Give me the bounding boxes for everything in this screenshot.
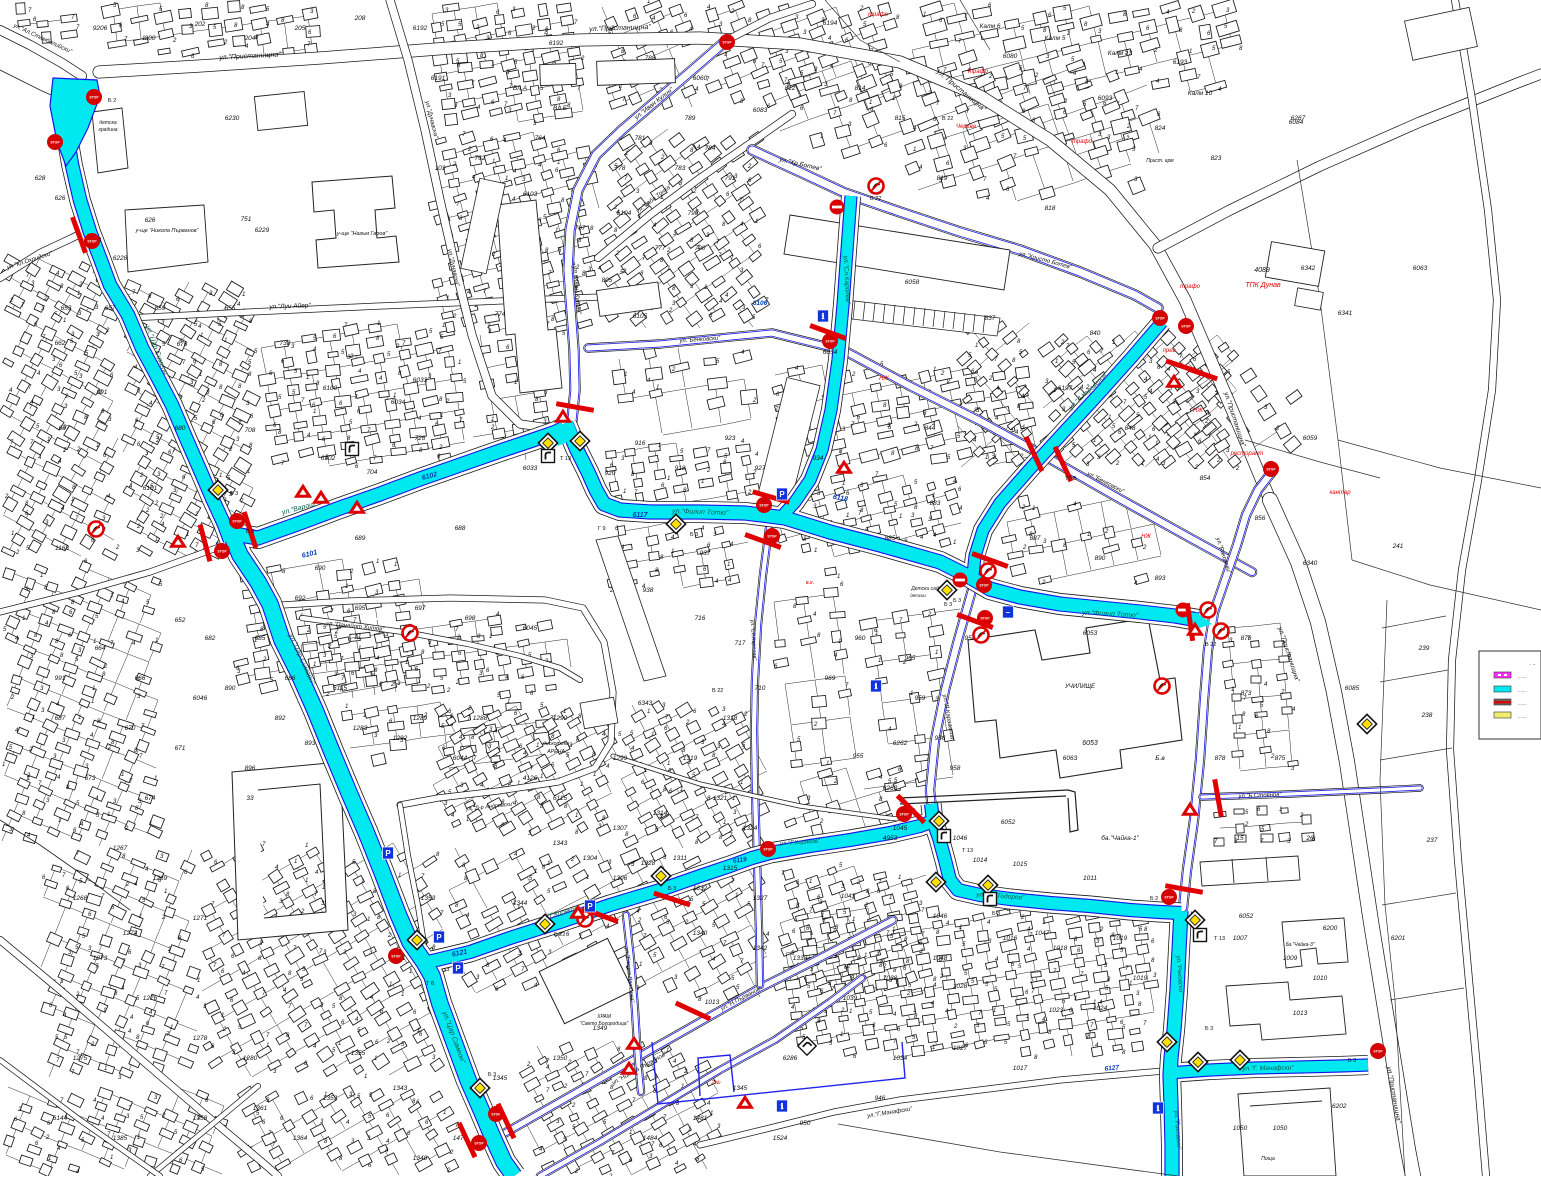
svg-text:2: 2 xyxy=(1142,545,1147,551)
svg-text:1: 1 xyxy=(107,812,110,818)
svg-text:883: 883 xyxy=(930,500,941,507)
svg-text:1: 1 xyxy=(740,780,743,786)
svg-text:2: 2 xyxy=(752,398,757,404)
svg-text:STOP: STOP xyxy=(763,847,773,851)
svg-text:1: 1 xyxy=(875,631,878,637)
svg-text:2: 2 xyxy=(262,657,267,663)
svg-text:1: 1 xyxy=(389,982,392,988)
svg-text:1319: 1319 xyxy=(683,755,698,762)
svg-text:Черква: Черква xyxy=(956,124,977,130)
svg-text:1: 1 xyxy=(688,1127,691,1133)
svg-text:2: 2 xyxy=(706,468,711,474)
svg-text:1: 1 xyxy=(199,372,202,378)
svg-text:Вл.А: Вл.А xyxy=(513,85,527,92)
svg-text:1: 1 xyxy=(869,100,872,106)
svg-text:1: 1 xyxy=(394,562,397,568)
svg-text:6197: 6197 xyxy=(1058,385,1073,392)
svg-text:1: 1 xyxy=(58,818,61,824)
svg-text:2: 2 xyxy=(327,644,332,650)
svg-text:Калм 6: Калм 6 xyxy=(980,23,1001,30)
svg-text:детски: детски xyxy=(910,593,926,598)
svg-text:1: 1 xyxy=(2,762,5,768)
svg-text:STOP: STOP xyxy=(50,140,60,144)
svg-text:687: 687 xyxy=(55,715,66,722)
svg-text:6034: 6034 xyxy=(391,399,406,406)
svg-text:трафо: трафо xyxy=(868,12,889,18)
svg-text:1: 1 xyxy=(647,709,650,715)
svg-text:2: 2 xyxy=(78,282,83,288)
svg-text:673: 673 xyxy=(85,775,96,782)
svg-text:STOP: STOP xyxy=(979,583,989,587)
svg-text:2: 2 xyxy=(840,1008,845,1014)
svg-text:6052: 6052 xyxy=(1239,913,1254,920)
svg-text:937: 937 xyxy=(700,550,711,557)
svg-text:1: 1 xyxy=(892,927,895,933)
svg-text:1: 1 xyxy=(363,713,366,719)
svg-text:680: 680 xyxy=(175,425,186,432)
svg-text:1: 1 xyxy=(1189,49,1192,55)
svg-text:1288: 1288 xyxy=(473,715,488,722)
svg-text:1028: 1028 xyxy=(953,983,968,990)
svg-text:1018: 1018 xyxy=(1053,945,1068,952)
svg-text:6101: 6101 xyxy=(143,485,158,492)
svg-text:2: 2 xyxy=(1126,124,1131,130)
svg-text:1: 1 xyxy=(732,796,735,802)
svg-text:1328: 1328 xyxy=(641,860,656,867)
svg-text:–: – xyxy=(1006,608,1011,617)
svg-text:927: 927 xyxy=(755,465,766,472)
svg-text:2: 2 xyxy=(390,682,395,688)
svg-text:1338: 1338 xyxy=(793,955,808,962)
svg-text:1: 1 xyxy=(78,715,81,721)
svg-text:2: 2 xyxy=(139,473,144,479)
svg-text:1: 1 xyxy=(1087,532,1090,538)
svg-text:1: 1 xyxy=(489,634,492,640)
svg-text:трафо: трафо xyxy=(968,69,989,75)
svg-text:1: 1 xyxy=(1053,388,1056,394)
svg-text:1: 1 xyxy=(104,1066,107,1072)
svg-text:2: 2 xyxy=(913,422,918,428)
svg-text:2: 2 xyxy=(107,745,112,751)
svg-text:1: 1 xyxy=(358,634,361,640)
svg-text:2: 2 xyxy=(747,164,752,170)
svg-text:6230: 6230 xyxy=(225,115,240,122)
svg-text:6105: 6105 xyxy=(633,313,648,320)
svg-text:1: 1 xyxy=(1055,359,1058,365)
svg-text:205: 205 xyxy=(294,25,306,32)
svg-text:Калм 10: Калм 10 xyxy=(1188,90,1213,97)
svg-text:STOP: STOP xyxy=(232,519,242,523)
svg-text:238: 238 xyxy=(1421,712,1433,719)
svg-text:1: 1 xyxy=(40,573,43,579)
svg-text:1016: 1016 xyxy=(1003,935,1018,942)
svg-text:1: 1 xyxy=(557,160,560,166)
svg-text:2: 2 xyxy=(446,688,451,694)
svg-text:6080: 6080 xyxy=(1003,53,1018,60)
svg-text:STOP: STOP xyxy=(1373,1049,1383,1053)
svg-text:STOP: STOP xyxy=(722,40,732,44)
svg-text:2: 2 xyxy=(395,344,400,350)
svg-text:1: 1 xyxy=(629,1130,632,1136)
svg-text:1007: 1007 xyxy=(1233,935,1248,942)
svg-text:1: 1 xyxy=(401,992,404,998)
svg-text:824: 824 xyxy=(1155,125,1166,132)
svg-text:1: 1 xyxy=(155,638,158,644)
svg-text:1: 1 xyxy=(892,96,895,102)
svg-text:2: 2 xyxy=(445,399,450,405)
svg-text:204: 204 xyxy=(244,35,256,42)
svg-text:823: 823 xyxy=(1211,155,1222,162)
svg-text:2№: 2№ xyxy=(710,1080,720,1086)
svg-text:2: 2 xyxy=(747,490,752,496)
svg-text:626: 626 xyxy=(55,195,66,202)
svg-text:1: 1 xyxy=(586,875,589,881)
svg-text:2: 2 xyxy=(43,296,48,302)
svg-text:1: 1 xyxy=(923,12,926,18)
svg-text:6059: 6059 xyxy=(1303,435,1318,442)
svg-text:6060: 6060 xyxy=(693,75,708,82)
svg-text:1273: 1273 xyxy=(93,955,108,962)
svg-text:1043: 1043 xyxy=(841,893,856,900)
svg-text:920: 920 xyxy=(605,470,616,477)
svg-text:1: 1 xyxy=(826,761,829,767)
svg-text:1: 1 xyxy=(491,417,494,423)
svg-text:1524: 1524 xyxy=(773,1135,788,1142)
svg-text:726: 726 xyxy=(415,435,426,442)
svg-text:2: 2 xyxy=(387,933,392,939)
svg-text:1290: 1290 xyxy=(553,715,568,722)
svg-text:2: 2 xyxy=(567,1060,572,1066)
svg-text:1271: 1271 xyxy=(193,915,208,922)
svg-text:1: 1 xyxy=(651,732,654,738)
svg-text:1350: 1350 xyxy=(553,1055,568,1062)
svg-text:STOP: STOP xyxy=(1266,467,1276,471)
svg-text:1272: 1272 xyxy=(123,930,138,937)
svg-text:991: 991 xyxy=(97,389,108,396)
svg-text:2: 2 xyxy=(692,189,697,195)
svg-text:1: 1 xyxy=(197,978,200,984)
svg-text:1: 1 xyxy=(671,549,674,555)
svg-text:1: 1 xyxy=(809,879,812,885)
svg-text:2: 2 xyxy=(1020,915,1025,921)
svg-text:1050: 1050 xyxy=(1273,1125,1288,1132)
svg-text:Б 2: Б 2 xyxy=(108,98,116,104)
svg-text:1: 1 xyxy=(374,1056,377,1062)
svg-text:1276: 1276 xyxy=(143,995,158,1002)
svg-text:1: 1 xyxy=(639,962,642,968)
svg-text:6106: 6106 xyxy=(753,300,768,307)
svg-text:у-ще ”Назъм Гаров”: у-ще ”Назъм Гаров” xyxy=(336,231,389,237)
svg-text:НЖ: НЖ xyxy=(1193,408,1203,414)
svg-text:2: 2 xyxy=(438,445,443,451)
svg-text:1361: 1361 xyxy=(253,1105,268,1112)
svg-text:STOP: STOP xyxy=(1181,324,1191,328)
svg-text:659: 659 xyxy=(155,305,166,312)
svg-text:1307: 1307 xyxy=(613,825,628,832)
svg-text:876: 876 xyxy=(1241,635,1252,642)
svg-text:STOP: STOP xyxy=(899,812,909,816)
svg-text:ТПК Дунав: ТПК Дунав xyxy=(1245,282,1281,289)
svg-text:1: 1 xyxy=(242,292,245,298)
svg-text:1024: 1024 xyxy=(1093,1005,1108,1012)
svg-text:1: 1 xyxy=(658,443,661,449)
svg-text:1046: 1046 xyxy=(953,835,968,842)
svg-text:716: 716 xyxy=(695,615,706,622)
svg-text:6263: 6263 xyxy=(883,785,898,792)
svg-text:1348: 1348 xyxy=(413,1155,428,1162)
svg-text:1: 1 xyxy=(313,662,316,668)
svg-text:6117: 6117 xyxy=(632,512,648,519)
svg-text:Вл.Б: Вл.Б xyxy=(553,105,567,112)
svg-text:697: 697 xyxy=(415,605,426,612)
svg-text:1: 1 xyxy=(440,413,443,419)
svg-text:103: 103 xyxy=(435,165,446,172)
svg-text:2: 2 xyxy=(154,501,159,507)
svg-text:ба.”Чайка-3”: ба.”Чайка-3” xyxy=(1286,941,1315,948)
svg-text:2: 2 xyxy=(172,38,177,44)
svg-text:2: 2 xyxy=(475,25,480,31)
svg-text:2: 2 xyxy=(167,947,172,953)
svg-text:1: 1 xyxy=(1042,920,1045,926)
svg-text:1: 1 xyxy=(814,548,817,554)
svg-text:1355: 1355 xyxy=(351,1050,366,1057)
svg-text:815: 815 xyxy=(895,115,906,122)
svg-text:2: 2 xyxy=(1275,426,1280,432)
svg-text:2: 2 xyxy=(671,367,676,373)
svg-text:P: P xyxy=(455,964,461,973)
svg-text:2: 2 xyxy=(452,314,457,320)
svg-text:791: 791 xyxy=(725,175,736,182)
svg-text:1: 1 xyxy=(593,772,596,778)
svg-text:2: 2 xyxy=(161,1113,166,1119)
svg-text:2: 2 xyxy=(201,398,206,404)
svg-text:6053: 6053 xyxy=(1083,630,1098,637)
svg-text:875: 875 xyxy=(1275,755,1286,762)
svg-text:2: 2 xyxy=(859,6,864,12)
svg-text:1: 1 xyxy=(306,375,309,381)
svg-text:1050: 1050 xyxy=(1233,1125,1248,1132)
svg-text:2: 2 xyxy=(1066,31,1071,37)
svg-text:1: 1 xyxy=(864,953,867,959)
svg-text:1: 1 xyxy=(959,925,962,931)
svg-text:1: 1 xyxy=(376,559,379,565)
svg-text:2: 2 xyxy=(1115,461,1120,467)
svg-text:2: 2 xyxy=(953,1024,958,1030)
svg-text:1: 1 xyxy=(1112,340,1115,346)
svg-text:1: 1 xyxy=(110,593,113,599)
svg-text:2: 2 xyxy=(426,684,431,690)
svg-text:657: 657 xyxy=(105,305,116,312)
svg-text:1: 1 xyxy=(505,176,508,182)
svg-text:Б 3: Б 3 xyxy=(246,529,254,535)
svg-text:УЧИЛИЩЕ: УЧИЛИЩЕ xyxy=(1064,684,1096,690)
svg-text:1: 1 xyxy=(154,776,157,782)
svg-text:4089: 4089 xyxy=(1254,267,1270,274)
svg-text:1484: 1484 xyxy=(643,1135,658,1142)
svg-text:1: 1 xyxy=(656,385,659,391)
svg-text:1010: 1010 xyxy=(1313,975,1328,982)
svg-text:в.к.: в.к. xyxy=(806,580,815,586)
svg-text:2: 2 xyxy=(615,251,620,257)
svg-text:2: 2 xyxy=(76,447,81,453)
svg-text:1344: 1344 xyxy=(513,900,528,907)
svg-text:208: 208 xyxy=(354,15,366,22)
svg-text:ресторант: ресторант xyxy=(1230,451,1264,457)
svg-text:991: 991 xyxy=(55,675,66,682)
svg-text:1324: 1324 xyxy=(743,825,758,832)
svg-text:1: 1 xyxy=(1231,687,1234,693)
svg-text:STOP: STOP xyxy=(87,239,97,243)
svg-text:1023: 1023 xyxy=(1049,1007,1064,1014)
svg-text:1014: 1014 xyxy=(973,857,988,864)
svg-text:1: 1 xyxy=(48,1156,51,1162)
svg-text:878: 878 xyxy=(1215,755,1226,762)
svg-text:670: 670 xyxy=(125,725,136,732)
svg-text:956: 956 xyxy=(935,735,946,742)
svg-text:667: 667 xyxy=(59,425,70,432)
svg-text:1: 1 xyxy=(103,1008,106,1014)
svg-text:1353: 1353 xyxy=(421,895,436,902)
svg-text:1343: 1343 xyxy=(553,840,568,847)
svg-text:934: 934 xyxy=(813,455,824,462)
svg-text:6342: 6342 xyxy=(1301,265,1316,272)
svg-text:674: 674 xyxy=(145,795,156,802)
svg-text:1: 1 xyxy=(458,360,461,366)
svg-text:1: 1 xyxy=(704,285,707,291)
svg-text:2: 2 xyxy=(1204,419,1209,425)
svg-text:6341: 6341 xyxy=(1338,310,1353,317)
svg-text:950: 950 xyxy=(800,1120,811,1127)
svg-text:890: 890 xyxy=(225,685,236,692)
svg-text:ул.”Г. Манафски”: ул.”Г. Манафски” xyxy=(1241,1065,1294,1073)
svg-text:STOP: STOP xyxy=(767,534,777,538)
svg-text:дискотека: дискотека xyxy=(543,741,569,747)
svg-text:6340: 6340 xyxy=(1303,560,1318,567)
svg-text:1: 1 xyxy=(842,481,845,487)
svg-text:2: 2 xyxy=(1244,822,1249,828)
svg-text:762: 762 xyxy=(475,155,486,162)
svg-text:2: 2 xyxy=(159,514,164,520)
svg-text:4126: 4126 xyxy=(523,775,538,782)
svg-text:1: 1 xyxy=(735,893,738,899)
svg-text:2: 2 xyxy=(90,1042,95,1048)
svg-text:P: P xyxy=(587,902,593,911)
svg-text:6201: 6201 xyxy=(1391,935,1406,942)
svg-text:2: 2 xyxy=(161,915,166,921)
svg-text:708: 708 xyxy=(245,427,256,434)
svg-text:1283: 1283 xyxy=(353,725,368,732)
svg-text:856: 856 xyxy=(1255,515,1266,522)
svg-text:2: 2 xyxy=(730,9,735,15)
svg-text:1019: 1019 xyxy=(1133,975,1148,982)
svg-text:1: 1 xyxy=(137,1135,140,1141)
svg-text:6192: 6192 xyxy=(549,40,564,47)
svg-text:трафо: трафо xyxy=(1072,139,1093,145)
svg-text:1: 1 xyxy=(443,1110,446,1116)
svg-text:2: 2 xyxy=(927,612,932,618)
svg-text:958: 958 xyxy=(950,765,961,772)
svg-text:6104: 6104 xyxy=(617,210,632,217)
svg-text:P: P xyxy=(779,490,785,499)
svg-text:1: 1 xyxy=(547,861,550,867)
svg-text:2: 2 xyxy=(988,376,993,382)
svg-text:Б.в: Б.в xyxy=(1155,755,1165,762)
svg-text:6228: 6228 xyxy=(113,255,128,262)
svg-text:959: 959 xyxy=(915,695,926,702)
svg-text:2: 2 xyxy=(813,722,818,728)
svg-text:2: 2 xyxy=(223,40,228,46)
svg-text:STOP: STOP xyxy=(217,549,227,553)
svg-text:819: 819 xyxy=(937,175,948,182)
svg-text:662: 662 xyxy=(55,340,66,347)
svg-text:2: 2 xyxy=(467,147,472,153)
svg-text:2: 2 xyxy=(105,328,110,334)
svg-text:1: 1 xyxy=(993,1008,996,1014)
svg-text:1163: 1163 xyxy=(55,545,69,552)
svg-text:805: 805 xyxy=(602,277,613,284)
svg-text:1: 1 xyxy=(932,1045,935,1051)
svg-text:1349: 1349 xyxy=(593,1025,608,1032)
svg-text:2: 2 xyxy=(1104,529,1109,535)
svg-text:666: 666 xyxy=(135,675,146,682)
svg-text:916: 916 xyxy=(635,440,646,447)
svg-text:1048: 1048 xyxy=(933,955,948,962)
svg-text:1: 1 xyxy=(1026,1014,1029,1020)
svg-text:STOP: STOP xyxy=(89,95,99,99)
svg-text:873: 873 xyxy=(1241,690,1252,697)
svg-text:695: 695 xyxy=(355,605,366,612)
svg-text:STOP: STOP xyxy=(391,954,401,958)
svg-text:955: 955 xyxy=(853,753,864,760)
svg-text:676: 676 xyxy=(177,341,188,348)
svg-text:2: 2 xyxy=(194,512,199,518)
svg-text:6100: 6100 xyxy=(323,385,338,392)
svg-text:1385: 1385 xyxy=(113,1135,128,1142)
svg-text:1: 1 xyxy=(32,715,35,721)
svg-text:1267: 1267 xyxy=(113,845,128,852)
svg-text:градина: градина xyxy=(98,127,117,133)
svg-text:689: 689 xyxy=(355,535,366,542)
svg-text:698: 698 xyxy=(465,615,476,622)
svg-text:2: 2 xyxy=(1216,458,1221,464)
svg-text:1: 1 xyxy=(313,409,316,415)
svg-text:2: 2 xyxy=(1153,48,1158,54)
svg-text:1: 1 xyxy=(92,686,95,692)
svg-text:2: 2 xyxy=(124,826,129,832)
svg-text:1: 1 xyxy=(221,1013,224,1019)
svg-text:664: 664 xyxy=(95,645,106,652)
svg-text:6058: 6058 xyxy=(905,279,920,286)
svg-text:1: 1 xyxy=(840,1032,843,1038)
svg-text:1: 1 xyxy=(975,343,978,349)
svg-text:764: 764 xyxy=(535,135,546,142)
svg-text:ХРАМ: ХРАМ xyxy=(596,1014,612,1020)
svg-text:1: 1 xyxy=(121,772,124,778)
svg-text:1: 1 xyxy=(492,159,495,165)
svg-text:P: P xyxy=(436,933,442,942)
svg-text:2: 2 xyxy=(1235,466,1240,472)
svg-text:837: 837 xyxy=(985,315,996,322)
svg-text:2: 2 xyxy=(446,1168,451,1174)
svg-text:6192: 6192 xyxy=(413,25,428,32)
svg-text:2: 2 xyxy=(919,949,924,955)
svg-text:1: 1 xyxy=(47,437,50,443)
svg-text:628: 628 xyxy=(35,175,46,182)
svg-text:1358: 1358 xyxy=(193,1115,208,1122)
svg-text:2: 2 xyxy=(306,628,311,634)
svg-text:1364: 1364 xyxy=(293,1135,308,1142)
svg-text:2: 2 xyxy=(684,920,689,926)
